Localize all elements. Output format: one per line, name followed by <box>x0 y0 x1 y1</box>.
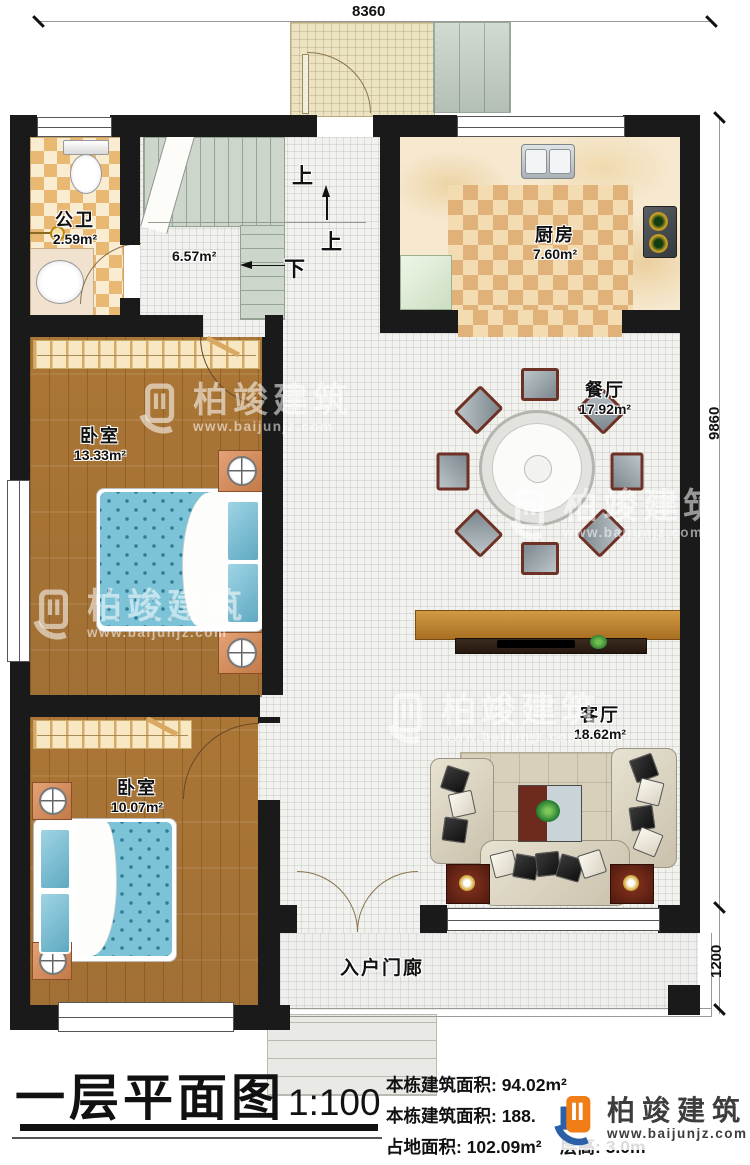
dimension-line-top <box>38 21 712 22</box>
sofa-pillow <box>448 790 476 818</box>
living-label: 客厅18.62m² <box>555 705 645 742</box>
entry-door-leaf <box>302 54 309 114</box>
dimension-top-width: 8360 <box>352 3 385 20</box>
porch-edge-bottom2 <box>283 1016 712 1017</box>
bedroom1-label: 卧室13.33m² <box>55 426 145 463</box>
living-window <box>447 908 660 931</box>
wall <box>10 115 30 480</box>
tv-screen <box>497 640 575 648</box>
stair-up-label-1: 上 <box>292 160 313 190</box>
title-underline-thick <box>20 1124 378 1131</box>
kitchen-label: 厨房7.60m² <box>510 225 600 262</box>
wall <box>380 310 458 333</box>
wall <box>658 905 700 933</box>
bed1-pillow-top <box>226 500 260 562</box>
porch-edge-bottom <box>283 1008 712 1009</box>
title-underline-thin <box>12 1137 382 1139</box>
wall <box>10 695 260 717</box>
scale-label: 1:100 <box>288 1082 381 1124</box>
bedroom2-bay-window <box>58 1002 234 1032</box>
burner-1 <box>649 212 668 231</box>
end-table-lamp <box>459 875 475 891</box>
dimension-porch-depth: 1200 <box>708 945 725 978</box>
info-line-2: 本栋建筑面积: 188. <box>386 1103 536 1128</box>
dimension-line-right <box>719 118 720 1014</box>
info-line-3: 占地面积: 102.09m² <box>386 1134 542 1159</box>
wall <box>258 717 280 723</box>
tv-cabinet <box>415 610 684 640</box>
porch-label: 入户门廊 <box>340 953 424 980</box>
bedroom1-window <box>7 480 30 662</box>
page-title: 一层平面图 <box>15 1058 285 1130</box>
bedroom2-closet <box>33 720 192 749</box>
wall <box>262 337 283 695</box>
down-arrow-stem <box>251 265 285 267</box>
kitchen-sink-basin-left <box>525 149 547 174</box>
nightstand-lamp <box>227 638 257 668</box>
burner-2 <box>649 234 668 253</box>
wall <box>10 1005 62 1030</box>
wall <box>680 115 700 905</box>
wall <box>258 800 280 1005</box>
coffee-table-plant <box>536 800 560 822</box>
kitchen-mat-extension <box>458 310 622 337</box>
brand-url: www.baijunjz.com <box>607 1125 748 1144</box>
wall <box>120 137 140 245</box>
nightstand-lamp <box>227 456 257 486</box>
brand-logo-icon <box>549 1092 599 1148</box>
floor-plan: 上 上 下 <box>0 0 750 1165</box>
wall <box>10 315 203 337</box>
bed2-pillow-bottom <box>39 892 71 954</box>
nightstand-lamp <box>39 787 67 815</box>
end-table-lamp <box>623 875 639 891</box>
bedroom2-label: 卧室10.07m² <box>92 778 182 815</box>
bed1-pillow-bottom <box>226 562 260 624</box>
dimension-side-height: 9860 <box>706 407 723 440</box>
kitchen-sink-basin-right <box>549 149 571 174</box>
dining-chair <box>521 542 559 575</box>
up-arrow-stem <box>326 196 328 220</box>
wall <box>265 315 283 337</box>
bed2-pillow-top <box>39 828 71 890</box>
wall <box>622 310 700 333</box>
wall <box>380 137 400 333</box>
wall <box>668 985 700 1015</box>
toilet-bowl <box>70 154 102 194</box>
side-ramp <box>433 22 511 113</box>
wall <box>373 115 457 137</box>
fridge <box>400 255 452 310</box>
wall <box>280 905 297 933</box>
dining-chair <box>521 368 559 401</box>
wall <box>420 905 447 933</box>
bathroom-window <box>37 117 112 137</box>
stair-lower-flight <box>240 225 285 320</box>
kitchen-window <box>457 116 625 137</box>
dining-label: 餐厅17.92m² <box>560 380 650 417</box>
brand-name: 柏竣建筑 <box>607 1097 748 1125</box>
dining-table <box>479 410 595 526</box>
toilet-tank <box>63 140 109 155</box>
stair-up-label-2: 上 <box>321 226 342 256</box>
bathroom-label: 公卫2.59m² <box>30 210 120 247</box>
brand-logo: 柏竣建筑 www.baijunjz.com <box>545 1090 750 1150</box>
stair-guide-line <box>148 222 366 223</box>
stair-down-label: 下 <box>284 253 305 283</box>
dining-chair <box>437 453 470 491</box>
console-plant <box>590 635 607 649</box>
wall <box>110 115 317 137</box>
info-line-1: 本栋建筑面积: 94.02m² <box>386 1072 567 1097</box>
bath-sink <box>36 260 84 304</box>
stair-hall-area-label: 6.57m² <box>172 248 216 264</box>
dining-chair <box>611 453 644 491</box>
wall <box>230 1005 290 1030</box>
sofa-pillow <box>441 816 468 843</box>
